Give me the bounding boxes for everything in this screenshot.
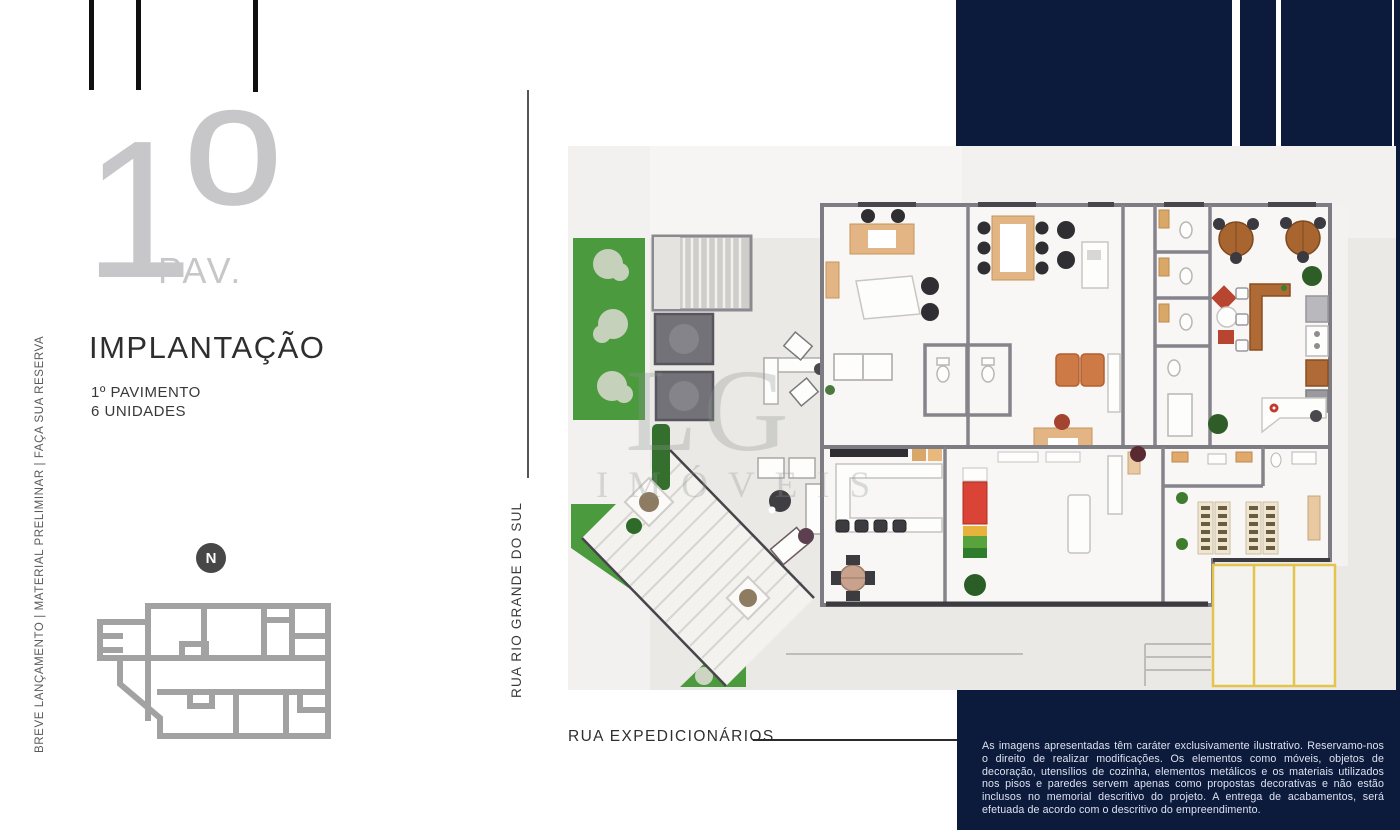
navy-block-right	[1281, 0, 1392, 146]
logo-bar-1	[89, 0, 94, 90]
vertical-divider-line	[527, 90, 529, 478]
hedge	[652, 424, 670, 490]
subtitle-pavimento: 1º PAVIMENTO	[91, 384, 201, 401]
navy-block-narrow	[1240, 0, 1276, 146]
page-title: IMPLANTAÇÃO	[89, 330, 325, 366]
disclaimer-block: As imagens apresentadas têm caráter excl…	[957, 690, 1400, 830]
floor-suffix: PAV.	[158, 250, 243, 292]
parking-stalls	[1213, 565, 1335, 686]
disclaimer-text: As imagens apresentadas têm caráter excl…	[982, 740, 1384, 817]
building-top-block	[822, 202, 1330, 451]
vertical-side-note: BREVE LANÇAMENTO | MATERIAL PRELIMINAR |…	[34, 393, 46, 753]
navy-block-large	[956, 0, 1232, 146]
street-label-bottom: RUA EXPEDICIONÁRIOS	[568, 728, 775, 746]
compass-north-icon: N	[196, 543, 226, 573]
street-label-left: RUA RIO GRANDE DO SUL	[509, 508, 524, 698]
site-plan-illustration	[568, 146, 1396, 690]
logo-bar-2	[136, 0, 141, 90]
subtitle-unidades: 6 UNIDADES	[91, 403, 186, 420]
page-canvas: 1º PAV. IMPLANTAÇÃO 1º PAVIMENTO 6 UNIDA…	[0, 0, 1400, 830]
street-line	[753, 739, 958, 741]
key-plan-outline	[86, 596, 338, 748]
stairs	[653, 236, 751, 310]
